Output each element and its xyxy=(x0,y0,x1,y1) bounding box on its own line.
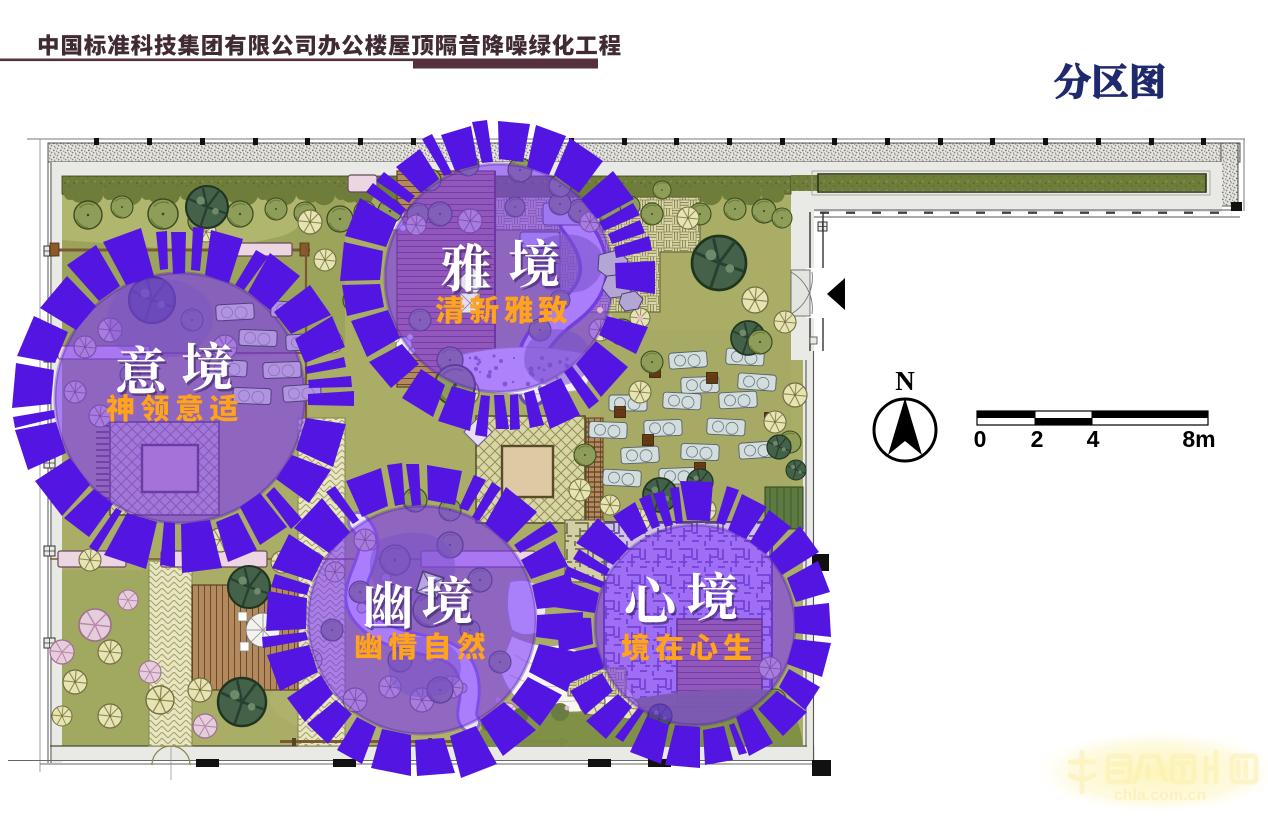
svg-text:N: N xyxy=(895,366,915,396)
svg-text:2: 2 xyxy=(1031,426,1044,452)
svg-text:4: 4 xyxy=(1087,426,1100,452)
svg-text:8m: 8m xyxy=(1182,426,1215,452)
svg-text:0: 0 xyxy=(974,426,987,452)
svg-text:chla.com.cn: chla.com.cn xyxy=(1114,787,1206,804)
